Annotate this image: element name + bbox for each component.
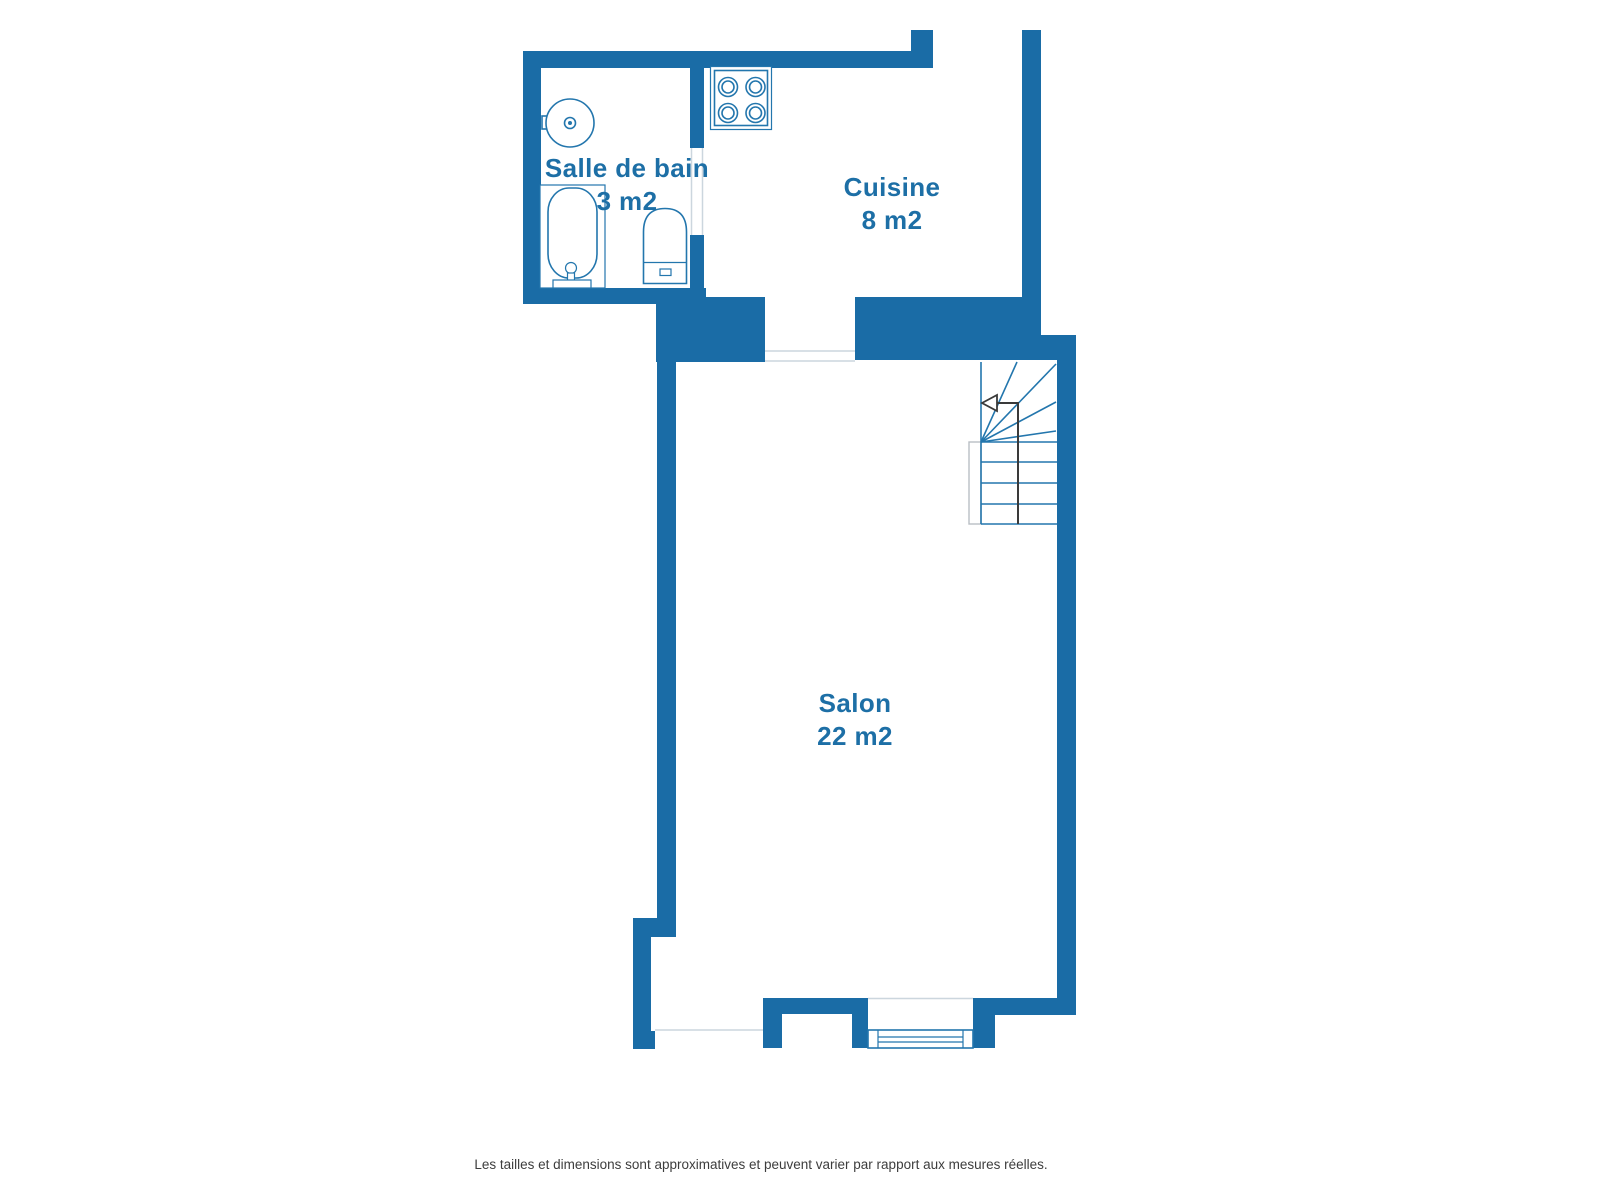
wall-kitchen-bottom-band: [855, 297, 1041, 360]
wall-salon-right: [1057, 335, 1076, 1015]
bathtub-faucet-deck: [553, 280, 591, 288]
floorplan-canvas: Salle de bain 3 m2 Cuisine 8 m2 Salon 22…: [0, 0, 1600, 1200]
wall-salon-left-upper: [657, 297, 676, 920]
wall-bathroom-kitchen-divider-lower: [690, 235, 704, 290]
room-area: 8 m2: [844, 204, 941, 237]
floorplan-drawing: [0, 0, 1600, 1200]
room-label-salon: Salon 22 m2: [817, 687, 893, 753]
room-area: 22 m2: [817, 720, 893, 753]
stair-direction-arrow: [982, 395, 997, 411]
window-frame: [868, 1030, 973, 1048]
salon-door-opening: [765, 351, 855, 361]
disclaimer-text: Les tailles et dimensions sont approxima…: [474, 1157, 1047, 1172]
wall-bathroom-left: [523, 51, 541, 304]
bathtub-drain: [566, 263, 577, 274]
toilet-icon: [644, 209, 687, 284]
wall-top: [523, 51, 933, 68]
wall-salon-bottom-leg-left: [763, 998, 782, 1048]
stair-handrail: [969, 442, 981, 524]
room-label-salle-de-bain: Salle de bain 3 m2: [545, 152, 709, 218]
staircase-icon: [969, 362, 1057, 524]
wall-salon-left-jog: [633, 918, 676, 937]
room-area: 3 m2: [545, 185, 709, 218]
wall-bathroom-kitchen-divider-upper: [690, 51, 704, 148]
window-icon: [868, 999, 973, 1049]
stove-icon: [711, 67, 772, 130]
wall-window-right-jamb: [973, 998, 995, 1048]
room-name: Cuisine: [844, 171, 941, 204]
wall-salon-left-foot: [633, 1031, 655, 1049]
room-label-cuisine: Cuisine 8 m2: [844, 171, 941, 237]
washing-machine-icon: [542, 99, 594, 147]
toilet-flush-button: [660, 269, 671, 276]
wall-salon-bottom-leg-right: [852, 998, 868, 1048]
room-name: Salon: [817, 687, 893, 720]
wall-kitchen-right: [1022, 30, 1041, 300]
wall-top-pillar: [911, 30, 933, 68]
washing-machine-hub-dot: [568, 121, 572, 125]
room-name: Salle de bain: [545, 152, 709, 185]
wall-salon-left-lower: [633, 937, 651, 1033]
